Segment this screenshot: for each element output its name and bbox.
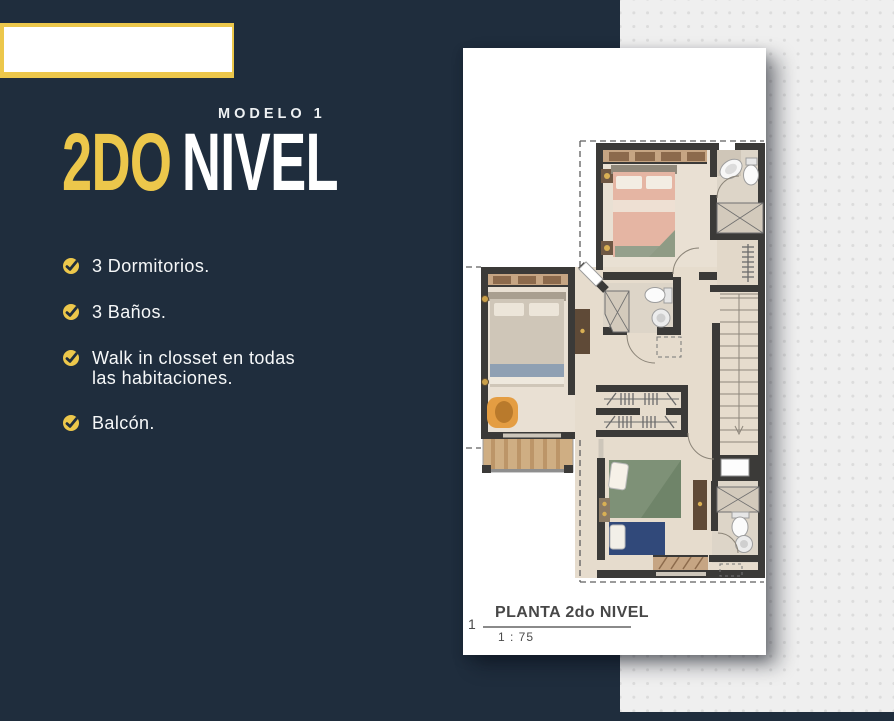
plan-scale: 1 : 75 xyxy=(498,630,534,644)
feature-label: Walk in closset en todas las habitacione… xyxy=(92,348,324,388)
closet-top-bedroom xyxy=(603,150,707,164)
feature-label: 3 Dormitorios. xyxy=(92,256,210,276)
floor-plan-sheet: 1 PLANTA 2do NIVEL 1 : 75 xyxy=(463,48,766,655)
page-title-rest: NIVEL xyxy=(182,117,338,208)
floor-plan-drawing xyxy=(463,48,766,655)
accent-bar-white-block xyxy=(4,27,232,72)
closet-bottom xyxy=(653,555,708,570)
check-circle-icon xyxy=(62,257,80,275)
plan-caption: PLANTA 2do NIVEL xyxy=(495,604,649,622)
feature-label: 3 Baños. xyxy=(92,302,166,322)
page-title: 2DONIVEL xyxy=(62,122,338,204)
check-circle-icon xyxy=(62,303,80,321)
caption-underline xyxy=(483,626,631,628)
feature-item: Walk in closset en todas las habitacione… xyxy=(62,348,324,388)
check-circle-icon xyxy=(62,414,80,432)
feature-item: 3 Dormitorios. xyxy=(62,256,324,276)
page-title-accent: 2DO xyxy=(62,117,171,208)
feature-label: Balcón. xyxy=(92,413,155,433)
closet-left-bedroom xyxy=(488,274,568,287)
feature-item: 3 Baños. xyxy=(62,302,324,322)
feature-list: 3 Dormitorios. 3 Baños. Walk in closset … xyxy=(62,256,324,459)
accent-bar xyxy=(0,23,234,78)
figure-number: 1 xyxy=(468,616,476,632)
balcony xyxy=(482,436,573,473)
feature-item: Balcón. xyxy=(62,413,324,433)
check-circle-icon xyxy=(62,349,80,367)
slide: MODELO 1 2DONIVEL 3 Dormitorios. 3 Baños… xyxy=(0,0,894,721)
